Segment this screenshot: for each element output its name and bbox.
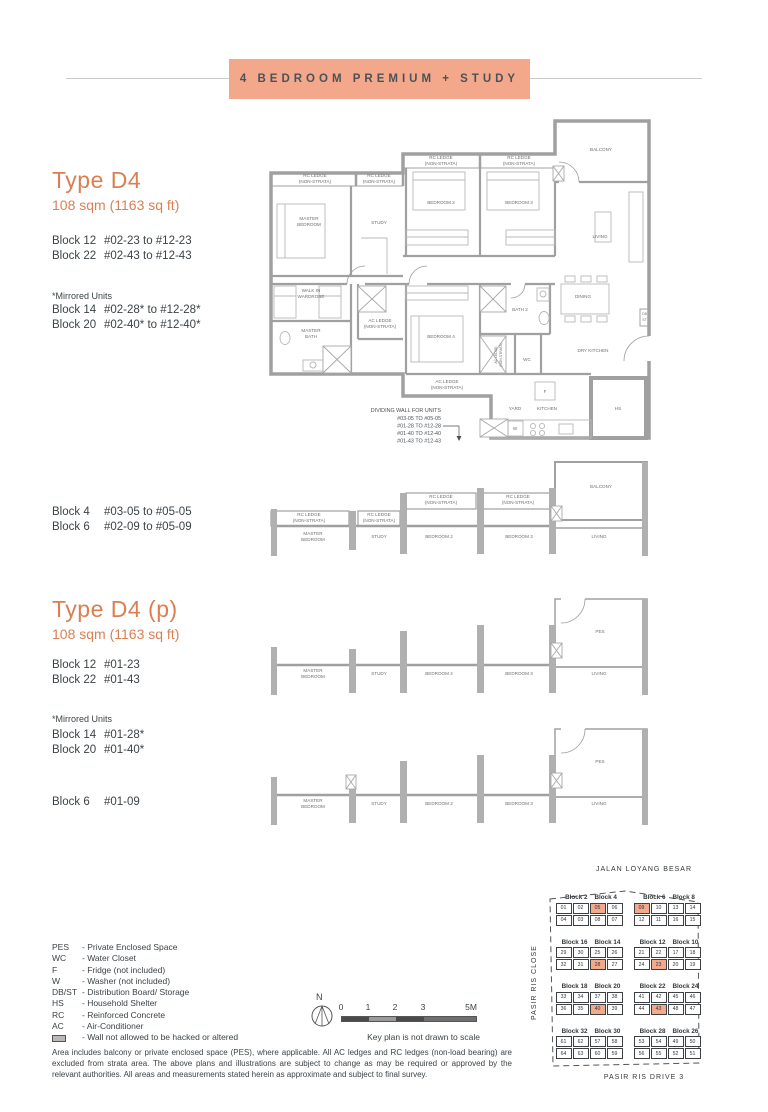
plan-room-label: F: [544, 389, 547, 394]
legend-abbr: AC: [52, 1021, 82, 1032]
plan-room-label: (NON-STRATA): [363, 179, 396, 184]
legend-desc: - Fridge (not included): [82, 965, 165, 976]
keyplan-cluster: Block 18Block 203334373836354039: [555, 983, 627, 1015]
legend-abbr: HS: [52, 998, 82, 1009]
plan-room-label: (NON-STRATA): [299, 179, 332, 184]
plan-room-label: BEDROOM 3: [505, 671, 533, 676]
keyplan-unit-cell: 34: [573, 992, 589, 1003]
plan-room-label: AC LEDGE: [494, 346, 498, 364]
scale-tick: 5M: [465, 1002, 477, 1012]
keyplan-block-label: Block 18: [562, 983, 588, 990]
plan-room-label: DINING: [575, 294, 592, 299]
plan-room-label: RC LEDGE: [429, 494, 453, 499]
keyplan-block-label: Block 32: [562, 1028, 588, 1035]
keyplan-scale-note: Key plan is not drawn to scale: [330, 1032, 480, 1042]
plan-room-label: RC LEDGE: [506, 494, 530, 499]
floor-plan-type-d4p-partial-2: PESMASTERBEDROOMSTUDYBEDROOM 2BEDROOM 3L…: [263, 717, 673, 827]
keyplan-unit-cell: 42: [651, 992, 667, 1003]
keyplan-block-label: Block 26: [673, 1028, 699, 1035]
banner-title: 4 BEDROOM PREMIUM + STUDY: [240, 73, 519, 85]
plan-room-label: (NON-STRATA): [502, 500, 535, 505]
plan-room-label: BATH 2: [512, 307, 528, 312]
keyplan-block-label: Block 20: [595, 983, 621, 990]
type-d4p-mirrored-blocks: Block 14 #01-28* Block 20 #01-40*: [52, 728, 144, 757]
plan-room-label: STUDY: [371, 801, 387, 806]
keyplan-cluster: Block 2Block 40102050604030807: [555, 894, 627, 926]
legend-abbr: WC: [52, 953, 82, 964]
keyplan-unit-cell: 57: [590, 1036, 606, 1047]
legend-abbr: DB/ST: [52, 987, 82, 998]
block-units: #01-23: [104, 658, 140, 673]
legend-desc: - Private Enclosed Space: [82, 942, 177, 953]
block-name: Block 22: [52, 673, 104, 688]
keyplan-unit-cell: 20: [668, 959, 684, 970]
plan-room-label: DB: [642, 312, 647, 316]
plan-room-label: MASTER: [299, 216, 319, 221]
keyplan-unit-cell: 64: [556, 1048, 572, 1059]
keyplan-unit-cell: 19: [685, 959, 701, 970]
plan-room-label: #01-40 TO #12-40: [397, 431, 441, 437]
plan-room-label: RC LEDGE: [297, 512, 321, 517]
plan-room-label: MASTER: [303, 531, 323, 536]
keyplan-block-label: Block 14: [595, 939, 621, 946]
plan-room-label: BEDROOM 3: [505, 801, 533, 806]
plan-room-label: RC LEDGE: [303, 173, 327, 178]
plan-room-label: #01-43 TO #12-43: [397, 439, 441, 445]
type-d4-mirrored-blocks: Block 14 #02-28* to #12-28* Block 20 #02…: [52, 303, 201, 332]
scale-tick: 0: [339, 1002, 344, 1012]
plan-room-label: LIVING: [591, 671, 606, 676]
legend-desc: - Wall not allowed to be hacked or alter…: [82, 1032, 238, 1043]
legend-item: WC- Water Closet: [52, 953, 238, 964]
keyplan-unit-cell: 06: [607, 903, 623, 914]
north-compass-icon: [309, 1003, 335, 1029]
type-d4p-blocks: Block 12 #01-23 Block 22 #01-43: [52, 658, 140, 687]
keyplan-block-label: Block 30: [595, 1028, 621, 1035]
legend-abbr: F: [52, 965, 82, 976]
plan-room-label: MASTER: [303, 668, 323, 673]
keyplan-block-label: Block 28: [640, 1028, 666, 1035]
plan-room-label: BEDROOM: [301, 537, 325, 542]
keyplan-unit-cell: 58: [607, 1036, 623, 1047]
north-label: N: [316, 992, 323, 1002]
plan-room-label: BEDROOM 3: [505, 200, 533, 205]
plan-room-label: (NON-STRATA): [425, 161, 458, 166]
type-d4-blocks-2: Block 4 #03-05 to #05-05 Block 6 #02-09 …: [52, 505, 192, 534]
block-row: Block 4 #03-05 to #05-05: [52, 505, 192, 520]
plan-room-label: BEDROOM 4: [427, 334, 455, 339]
plan-room-label: DRY KITCHEN: [578, 348, 609, 353]
keyplan-block-label: Block 12: [640, 939, 666, 946]
keyplan-unit-cell: 54: [651, 1036, 667, 1047]
keyplan-unit-cell: 28: [590, 959, 606, 970]
plan-room-label: RC LEDGE: [367, 173, 391, 178]
legend-item: W- Washer (not included): [52, 976, 238, 987]
keyplan-block-label: Block 10: [673, 939, 699, 946]
keyplan-unit-cell: 26: [607, 947, 623, 958]
scale-bar: N 0 1 2 3 5M: [305, 995, 490, 1029]
block-units: #02-43 to #12-43: [104, 249, 192, 264]
keyplan-unit-cell: 48: [668, 1004, 684, 1015]
plan-room-label: WARDROBE: [298, 294, 325, 299]
floor-plan-type-d4p-partial-1: PESMASTERBEDROOMSTUDYBEDROOM 2BEDROOM 3L…: [263, 587, 673, 697]
legend-item: AC- Air-Conditioner: [52, 1021, 238, 1032]
block-row: Block 14 #01-28*: [52, 728, 144, 743]
keyplan-unit-cell: 56: [634, 1048, 650, 1059]
block-units: #03-05 to #05-05: [104, 505, 192, 520]
keyplan-unit-cell: 05: [590, 903, 606, 914]
block-name: Block 6: [52, 795, 104, 810]
keyplan-unit-cell: 07: [607, 915, 623, 926]
plan-room-label: STUDY: [371, 534, 387, 539]
keyplan-unit-cell: 10: [651, 903, 667, 914]
keyplan-unit-cell: 33: [556, 992, 572, 1003]
keyplan-unit-cell: 45: [668, 992, 684, 1003]
keyplan-unit-cell: 17: [668, 947, 684, 958]
plan-room-label: BATH: [305, 334, 317, 339]
legend-item: HS- Household Shelter: [52, 998, 238, 1009]
keyplan-unit-cell: 37: [590, 992, 606, 1003]
wall-swatch-icon: [52, 1035, 66, 1042]
legend-desc: - Distribution Board/ Storage: [82, 987, 189, 998]
plan-room-label: PES: [595, 759, 604, 764]
type-d4-area: 108 sqm (1163 sq ft): [52, 197, 179, 213]
legend-item: PES- Private Enclosed Space: [52, 942, 238, 953]
keyplan-unit-cell: 40: [590, 1004, 606, 1015]
keyplan-unit-cell: 50: [685, 1036, 701, 1047]
keyplan-block-label: Block 4: [595, 894, 617, 901]
keyplan-unit-cell: 23: [651, 959, 667, 970]
type-d4-title: Type D4: [52, 167, 141, 194]
plan-room-label: BEDROOM 2: [425, 671, 453, 676]
keyplan-unit-cell: 13: [668, 903, 684, 914]
legend-abbr: RC: [52, 1010, 82, 1021]
floor-plan-type-d4: RC LEDGE(NON-STRATA)RC LEDGE(NON-STRATA)…: [263, 106, 673, 451]
type-d4p-area: 108 sqm (1163 sq ft): [52, 626, 179, 642]
banner: 4 BEDROOM PREMIUM + STUDY: [229, 59, 530, 99]
plan-room-label: #01-28 TO #12-28: [397, 424, 441, 430]
keyplan-unit-cell: 01: [556, 903, 572, 914]
block-row: Block 6 #02-09 to #05-09: [52, 520, 192, 535]
keyplan-unit-cell: 09: [634, 903, 650, 914]
plan-room-label: LIVING: [591, 534, 606, 539]
block-row: Block 12 #01-23: [52, 658, 140, 673]
scale-tick: 2: [393, 1002, 398, 1012]
block-name: Block 12: [52, 658, 104, 673]
block-row: Block 22 #02-43 to #12-43: [52, 249, 192, 264]
plan-room-label: AC LEDGE: [435, 379, 458, 384]
keyplan-unit-cell: 46: [685, 992, 701, 1003]
block-units: #02-28* to #12-28*: [104, 303, 201, 318]
plan-room-label: RC LEDGE: [367, 512, 391, 517]
keyplan-unit-cell: 38: [607, 992, 623, 1003]
block-row: Block 6 #01-09: [52, 795, 140, 810]
block-units: #02-09 to #05-09: [104, 520, 192, 535]
legend-item: - Wall not allowed to be hacked or alter…: [52, 1032, 238, 1043]
block-row: Block 22 #01-43: [52, 673, 140, 688]
plan-room-label: LIVING: [591, 801, 606, 806]
plan-room-label: (NON-STRATA): [499, 343, 503, 367]
legend-desc: - Water Closet: [82, 953, 136, 964]
keyplan-cluster: Block 32Block 306162575864636059: [555, 1028, 627, 1060]
keyplan-unit-cell: 25: [590, 947, 606, 958]
plan-room-label: BALCONY: [590, 484, 612, 489]
keyplan-unit-cell: 41: [634, 992, 650, 1003]
keyplan-unit-cell: 32: [556, 959, 572, 970]
legend-item: DB/ST- Distribution Board/ Storage: [52, 987, 238, 998]
plan-room-label: HS: [615, 406, 621, 411]
legend-desc: - Household Shelter: [82, 998, 157, 1009]
keyplan-unit-cell: 60: [590, 1048, 606, 1059]
plan-room-label: BEDROOM 2: [425, 534, 453, 539]
keyplan-unit-cell: 21: [634, 947, 650, 958]
keyplan-cluster: Block 16Block 142930252632312827: [555, 939, 627, 971]
plan-room-label: (NON-STRATA): [425, 500, 458, 505]
keyplan-unit-cell: 49: [668, 1036, 684, 1047]
floor-plan-type-d4-upper-partial: RC LEDGE(NON-STRATA)RC LEDGE(NON-STRATA)…: [263, 448, 673, 568]
block-row: Block 12 #02-23 to #12-23: [52, 234, 192, 249]
block-name: Block 4: [52, 505, 104, 520]
keyplan-unit-cell: 29: [556, 947, 572, 958]
plan-room-label: WALK IN: [302, 288, 321, 293]
keyplan-unit-cell: 36: [556, 1004, 572, 1015]
block-row: Block 14 #02-28* to #12-28*: [52, 303, 201, 318]
keyplan-unit-cell: 04: [556, 915, 572, 926]
keyplan-unit-cell: 18: [685, 947, 701, 958]
plan-room-label: BEDROOM 2: [427, 200, 455, 205]
keyplan-clusters: Block 2Block 40102050604030807Block 6Blo…: [520, 862, 768, 1102]
plan-room-label: (NON-STRATA): [364, 324, 397, 329]
block-row: Block 20 #01-40*: [52, 743, 144, 758]
keyplan-unit-cell: 30: [573, 947, 589, 958]
plan-room-label: YARD: [509, 406, 522, 411]
keyplan-block-label: Block 22: [640, 983, 666, 990]
block-name: Block 14: [52, 303, 104, 318]
scale-bar-graphic: [341, 1016, 477, 1022]
scale-tick: 1: [366, 1002, 371, 1012]
keyplan-cluster: Block 22Block 244142454644434847: [633, 983, 705, 1015]
keyplan-unit-cell: 15: [685, 915, 701, 926]
keyplan-unit-cell: 51: [685, 1048, 701, 1059]
plan-room-label: WC: [523, 357, 531, 362]
block-units: #01-09: [104, 795, 140, 810]
block-row: Block 20 #02-40* to #12-40*: [52, 318, 201, 333]
keyplan-unit-cell: 52: [668, 1048, 684, 1059]
scale-tick: 3: [421, 1002, 426, 1012]
keyplan-unit-cell: 53: [634, 1036, 650, 1047]
keyplan-unit-cell: 63: [573, 1048, 589, 1059]
keyplan-unit-cell: 16: [668, 915, 684, 926]
type-d4-blocks: Block 12 #02-23 to #12-23 Block 22 #02-4…: [52, 234, 192, 263]
keyplan-block-label: Block 2: [565, 894, 587, 901]
plan-room-label: (NON-STRATA): [503, 161, 536, 166]
legend-abbr: PES: [52, 942, 82, 953]
plan-room-label: MASTER: [301, 328, 321, 333]
plan-room-label: DIVIDING WALL FOR UNITS: [371, 408, 442, 414]
keyplan-unit-cell: 31: [573, 959, 589, 970]
plan-room-label: BEDROOM: [301, 804, 325, 809]
legend-item: F- Fridge (not included): [52, 965, 238, 976]
plan-room-label: PES: [595, 629, 604, 634]
block-name: Block 20: [52, 743, 104, 758]
keyplan-unit-cell: 47: [685, 1004, 701, 1015]
plan-room-label: BEDROOM 3: [505, 534, 533, 539]
block-name: Block 14: [52, 728, 104, 743]
keyplan-unit-cell: 08: [590, 915, 606, 926]
keyplan: JALAN LOYANG BESAR PASIR RIS CLOSE PASIR…: [520, 862, 768, 1102]
plan-room-label: BEDROOM 2: [425, 801, 453, 806]
legend-desc: - Washer (not included): [82, 976, 170, 987]
block-name: Block 22: [52, 249, 104, 264]
keyplan-unit-cell: 02: [573, 903, 589, 914]
block-units: #01-43: [104, 673, 140, 688]
keyplan-unit-cell: 35: [573, 1004, 589, 1015]
block-name: Block 12: [52, 234, 104, 249]
block-units: #02-23 to #12-23: [104, 234, 192, 249]
keyplan-unit-cell: 24: [634, 959, 650, 970]
plan-room-label: W: [513, 426, 518, 431]
plan-room-label: RC LEDGE: [429, 155, 453, 160]
keyplan-cluster: Block 6Block 80910131412111615: [633, 894, 705, 926]
plan-room-label: ST: [642, 318, 646, 322]
keyplan-block-label: Block 8: [673, 894, 695, 901]
plan-room-label: STUDY: [371, 220, 387, 225]
keyplan-unit-cell: 44: [634, 1004, 650, 1015]
plan-room-label: LIVING: [592, 234, 607, 239]
keyplan-cluster: Block 12Block 102122171824232019: [633, 939, 705, 971]
keyplan-block-label: Block 24: [673, 983, 699, 990]
keyplan-unit-cell: 43: [651, 1004, 667, 1015]
legend-desc: - Air-Conditioner: [82, 1021, 143, 1032]
plan-room-label: AC LEDGE: [368, 318, 391, 323]
plan-room-label: #03-05 TO #05-05: [397, 416, 441, 422]
block-name: Block 6: [52, 520, 104, 535]
mirrored-units-label: *Mirrored Units: [52, 291, 112, 301]
keyplan-unit-cell: 22: [651, 947, 667, 958]
plan-room-label: BALCONY: [590, 147, 612, 152]
keyplan-unit-cell: 12: [634, 915, 650, 926]
keyplan-unit-cell: 11: [651, 915, 667, 926]
keyplan-unit-cell: 27: [607, 959, 623, 970]
mirrored-units-label: *Mirrored Units: [52, 714, 112, 724]
keyplan-unit-cell: 14: [685, 903, 701, 914]
type-d4p-title: Type D4 (p): [52, 596, 178, 623]
keyplan-unit-cell: 59: [607, 1048, 623, 1059]
plan-room-label: MASTER: [303, 798, 323, 803]
plan-room-label: RC LEDGE: [507, 155, 531, 160]
legend: PES- Private Enclosed SpaceWC- Water Clo…: [52, 942, 238, 1044]
block-name: Block 20: [52, 318, 104, 333]
block-units: #01-40*: [104, 743, 144, 758]
keyplan-block-label: Block 6: [643, 894, 665, 901]
block-units: #01-28*: [104, 728, 144, 743]
plan-room-label: STUDY: [371, 671, 387, 676]
plan1-room-labels: RC LEDGE(NON-STRATA)RC LEDGE(NON-STRATA)…: [297, 147, 647, 445]
legend-abbr: W: [52, 976, 82, 987]
plan-room-label: BEDROOM: [301, 674, 325, 679]
keyplan-unit-cell: 03: [573, 915, 589, 926]
keyplan-unit-cell: 62: [573, 1036, 589, 1047]
plan-room-label: (NON-STRATA): [363, 518, 396, 523]
legend-desc: - Reinforced Concrete: [82, 1010, 165, 1021]
keyplan-block-label: Block 16: [562, 939, 588, 946]
keyplan-unit-cell: 39: [607, 1004, 623, 1015]
plan-room-label: KITCHEN: [537, 406, 557, 411]
keyplan-cluster: Block 28Block 265354495056555251: [633, 1028, 705, 1060]
plan-room-label: (NON-STRATA): [293, 518, 326, 523]
keyplan-unit-cell: 55: [651, 1048, 667, 1059]
block-units: #02-40* to #12-40*: [104, 318, 201, 333]
disclaimer-text: Area includes balcony or private enclose…: [52, 1048, 512, 1080]
type-d4p-blocks-2: Block 6 #01-09: [52, 795, 140, 810]
keyplan-unit-cell: 61: [556, 1036, 572, 1047]
legend-item: RC- Reinforced Concrete: [52, 1010, 238, 1021]
plan-room-label: (NON-STRATA): [431, 385, 464, 390]
plan-room-label: BEDROOM: [297, 222, 321, 227]
floorplan-brochure-page: 4 BEDROOM PREMIUM + STUDY Type D4 108 sq…: [0, 0, 768, 1112]
